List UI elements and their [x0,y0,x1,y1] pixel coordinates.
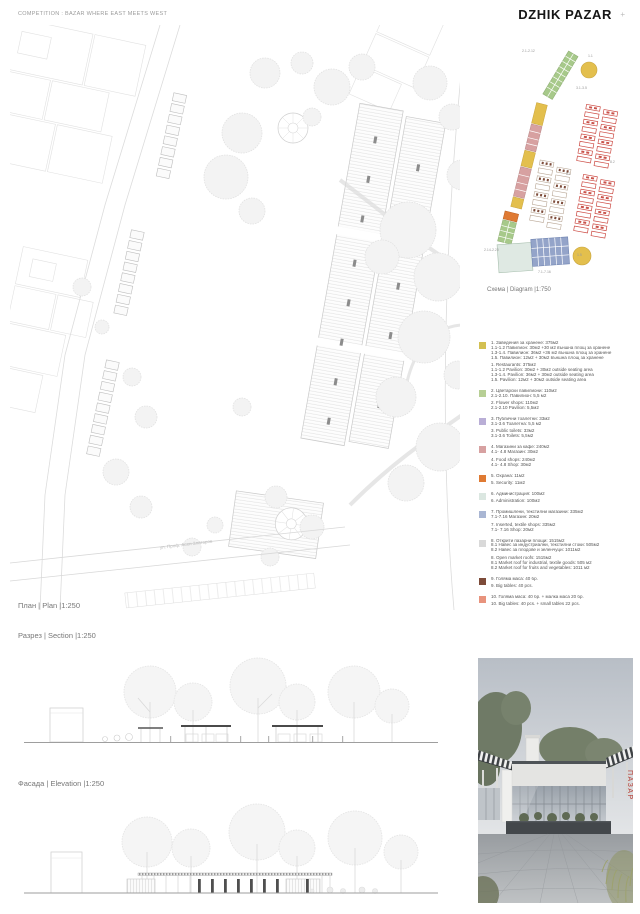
diagram-circle-pavilion-2 [573,247,591,265]
elevation-caption: Фасада | Elevation |1:250 [18,779,104,788]
section-trees [124,658,409,723]
legend-swatch [479,493,486,500]
render-photo: ПАЗАР [478,658,633,903]
scheme-diagram [478,42,640,292]
section-drawing [10,650,450,760]
diagram-circle-pavilion [581,62,597,78]
legend-swatch [479,418,486,425]
section-figures [103,734,344,743]
legend-item: 6. Администрация: 100м26. Administration… [479,492,637,504]
diagram-flower-strip [543,51,578,100]
legend-text: 1. Заведения за хранене: 375м21.1-1.2 Па… [491,341,637,383]
section-canopies [138,725,323,742]
diagram-caption: Схема | Diagram |1:750 [487,287,551,293]
presentation-board: COMPETITION : BAZAR WHERE EAST MEETS WES… [0,0,640,914]
legend-item: 7. Промишлени, текстилни магазини: 335м2… [479,510,637,532]
legend-swatch [479,446,486,453]
legend-item: 4. Магазини за кафе: 240м24.1- 4.8 Магаз… [479,445,637,467]
diagram-market-roof-lower [573,174,615,238]
legend: 1. Заведения за хранене: 375м21.1-1.2 Па… [479,341,637,607]
plan-caption: План | Plan |1:250 [18,601,80,610]
legend-text: 3. Публични тоалетни: 33м23.1-3.6 Тоалет… [491,417,637,439]
photo-sign-text: ПАЗАР [626,770,633,801]
elevation-pavilion [127,873,332,893]
elevation-drawing [10,790,450,908]
competition-label: COMPETITION : BAZAR WHERE EAST MEETS WES… [18,11,167,17]
legend-item: 9. Голяма маса: 40 бр.9. Big tables: 40 … [479,577,637,589]
legend-swatch [479,511,486,518]
legend-swatch [479,596,486,603]
legend-swatch [479,578,486,585]
legend-text: 8. Открити пазарни площи: 1515м28.1 Наве… [491,539,637,571]
diagram-security-flower-block [498,211,519,244]
legend-text: 7. Промишлени, текстилни магазини: 335м2… [491,510,637,532]
legend-item: 1. Заведения за хранене: 375м21.1-1.2 Па… [479,341,637,383]
legend-swatch [479,475,486,482]
legend-text: 5. Охрана: 11м25. Security: 11м2 [491,474,637,486]
legend-text: 6. Администрация: 100м26. Administration… [491,492,637,504]
legend-item: 5. Охрана: 11м25. Security: 11м2 [479,474,637,486]
legend-text: 9. Голяма маса: 40 бр.9. Big tables: 40 … [491,577,637,589]
page-mark: + [620,10,625,19]
legend-text: 4. Магазини за кафе: 240м24.1- 4.8 Магаз… [491,445,637,467]
legend-text: 10. Голяма маса: 40 бр. + малка маса 20 … [491,595,637,607]
elevation-trees [122,804,418,869]
legend-item: 2. Цветарски павилиони: 110м22.1-2.10. П… [479,389,637,411]
diagram-table-rows [529,160,572,230]
site-plan-drawing: ул. Проф. Асен Златаров [10,25,460,610]
project-title: DZHIK PAZAR [518,7,612,22]
legend-item: 3. Публични тоалетни: 33м23.1-3.6 Тоалет… [479,417,637,439]
diagram-market-roof-upper [576,104,618,168]
legend-swatch [479,342,486,349]
legend-swatch [479,390,486,397]
legend-text: 2. Цветарски павилиони: 110м22.1-2.10. П… [491,389,637,411]
section-caption: Разрез | Section |1:250 [18,631,96,640]
legend-item: 10. Голяма маса: 40 бр. + малка маса 20 … [479,595,637,607]
legend-swatch [479,540,486,547]
legend-item: 8. Открити пазарни площи: 1515м28.1 Наве… [479,539,637,571]
